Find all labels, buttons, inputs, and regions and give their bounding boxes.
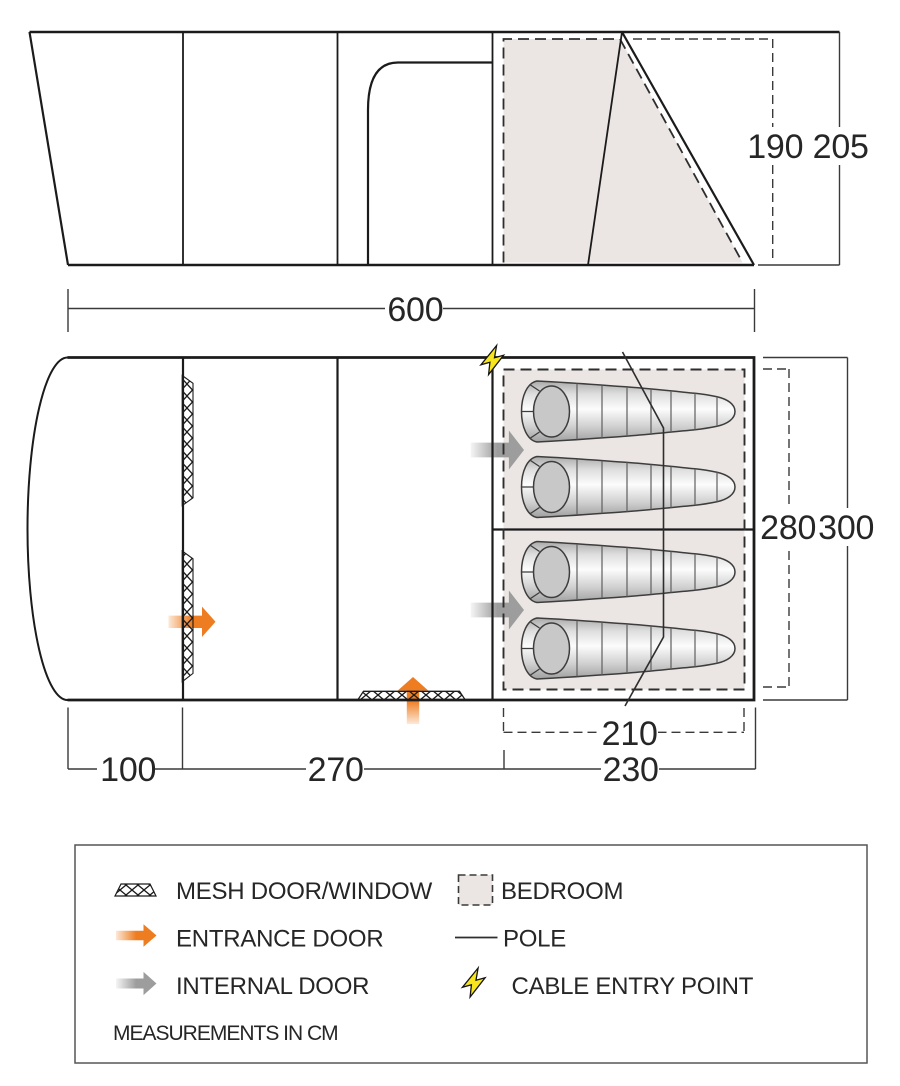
svg-text:270: 270 — [308, 751, 364, 789]
svg-text:ENTRANCE DOOR: ENTRANCE DOOR — [176, 926, 383, 953]
svg-text:280: 280 — [760, 509, 816, 547]
svg-text:MESH DOOR/WINDOW: MESH DOOR/WINDOW — [176, 878, 433, 905]
svg-text:210: 210 — [602, 715, 658, 753]
svg-text:POLE: POLE — [503, 926, 566, 953]
svg-text:100: 100 — [100, 751, 156, 789]
svg-text:BEDROOM: BEDROOM — [501, 878, 623, 905]
svg-text:600: 600 — [387, 291, 443, 329]
svg-text:230: 230 — [603, 751, 659, 789]
svg-text:190: 190 — [747, 128, 803, 166]
svg-text:300: 300 — [818, 509, 874, 547]
svg-text:205: 205 — [813, 128, 869, 166]
svg-text:CABLE ENTRY POINT: CABLE ENTRY POINT — [512, 973, 754, 1000]
svg-text:MEASUREMENTS IN CM: MEASUREMENTS IN CM — [113, 1022, 338, 1045]
svg-text:INTERNAL DOOR: INTERNAL DOOR — [176, 973, 369, 1000]
